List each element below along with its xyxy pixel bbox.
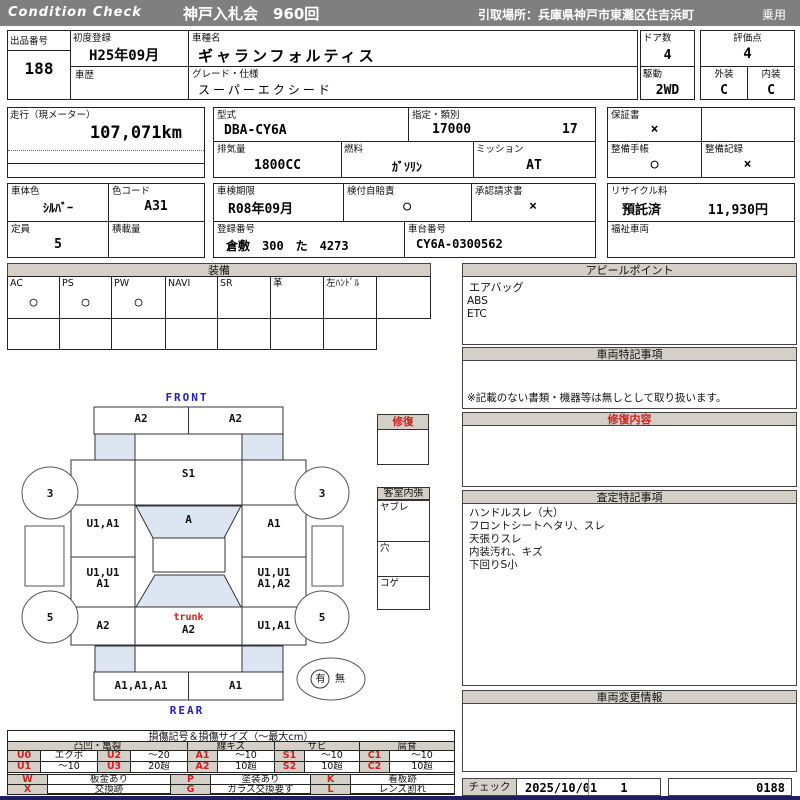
field-recycle-group: リサイクル料 預託済 11,930円 福祉車両 bbox=[607, 183, 795, 258]
model-code-value: DBA-CY6A bbox=[224, 123, 287, 138]
vehicle-category: 乗用 bbox=[762, 6, 786, 23]
field-model-name: 車種名 ギャランフォルティス グレード・仕様 スーパーエクシード bbox=[188, 30, 638, 100]
panel-rear-bumper-left: A1,A1,A1 bbox=[94, 680, 188, 691]
legend-value: ガラス交換要す bbox=[210, 784, 311, 795]
panel-front-bumper-left: A2 bbox=[94, 413, 188, 424]
equipment-label: PS bbox=[62, 278, 74, 289]
chassis-value: CY6A-0300562 bbox=[416, 237, 503, 251]
change-panel-title: 車両変更情報 bbox=[462, 690, 797, 704]
repair-panel-body bbox=[462, 426, 797, 487]
class-value-1: 17000 bbox=[432, 122, 471, 137]
equipment-cell-leather: 革 bbox=[270, 276, 324, 319]
equipment-empty-cell bbox=[59, 318, 112, 350]
equipment-empty-cell bbox=[111, 318, 166, 350]
equipment-mark: ○ bbox=[8, 295, 59, 310]
vehicle-notes-title: 車両特記事項 bbox=[462, 347, 797, 361]
field-model-code-group: 型式 DBA-CY6A 指定・類別 17000 17 排気量 1800CC 燃料… bbox=[213, 107, 596, 178]
mileage-label: 走行（現メーター） bbox=[10, 110, 96, 121]
check-number-box: 0188 bbox=[668, 778, 792, 796]
grade-value: スーパーエクシード bbox=[198, 81, 333, 98]
field-score: 評価点 4 外装 C 内装 C bbox=[700, 30, 795, 100]
cabin-row-burn: コゲ bbox=[377, 576, 430, 610]
inspection-value: R08年09月 bbox=[228, 198, 293, 217]
assessment-line: 天張りスレ bbox=[469, 533, 522, 546]
color-code-label: 色コード bbox=[112, 186, 150, 197]
equipment-empty-cell bbox=[7, 318, 60, 350]
welfare-label: 福祉車両 bbox=[611, 224, 649, 235]
trunk-caption: trunk bbox=[135, 612, 242, 623]
score-value: 4 bbox=[701, 46, 794, 62]
assessment-panel-body: ハンドルスレ（大） フロントシートヘタリ、スレ 天張りスレ 内装汚れ、キズ 下回… bbox=[462, 504, 797, 686]
cabin-row-tear: ヤブレ bbox=[377, 500, 430, 542]
mission-value: AT bbox=[473, 158, 595, 173]
warranty-label: 保証書 bbox=[611, 110, 640, 121]
maintenance-book-label: 整備手帳 bbox=[611, 144, 649, 155]
legend-code: S2 bbox=[274, 761, 305, 773]
brand-logo: Condition Check bbox=[8, 5, 142, 20]
maintenance-record-value: × bbox=[701, 157, 794, 172]
recycle-status: 預託済 bbox=[622, 199, 661, 218]
legend-code: A2 bbox=[187, 761, 218, 773]
panel-hood: S1 bbox=[135, 468, 242, 479]
field-warranty-group: 保証書 × 整備手帳 ○ 整備記録 × bbox=[607, 107, 795, 178]
equipment-title: 装備 bbox=[7, 263, 431, 277]
interior-label: 内装 bbox=[748, 69, 794, 80]
equipment-label: AC bbox=[10, 278, 23, 289]
rear-right-wheel-mark: 5 bbox=[294, 612, 350, 623]
equipment-mark: ○ bbox=[112, 295, 165, 310]
field-inspection-group: 車検期限 R08年09月 検付自賠責 ○ 承認請求書 × 登録番号 倉敷 300… bbox=[213, 183, 596, 258]
recycle-fee: 11,930円 bbox=[708, 199, 768, 218]
drive-label: 駆動 bbox=[643, 69, 662, 80]
legend-code: G bbox=[170, 784, 211, 795]
equipment-cell-extra bbox=[376, 276, 431, 319]
cabin-box-title: 客室内張 bbox=[377, 487, 430, 500]
repair-mini-title: 修復 bbox=[377, 414, 429, 430]
reg-no-value: 倉敷 300 た 4273 bbox=[226, 237, 349, 254]
warranty-value: × bbox=[608, 122, 701, 137]
equipment-cell-navi: NAVI bbox=[165, 276, 218, 319]
legend-code: X bbox=[7, 784, 48, 795]
capacity-label: 定員 bbox=[11, 224, 30, 235]
equipment-cell-sr: SR bbox=[217, 276, 271, 319]
check-count: 1 bbox=[588, 781, 660, 795]
doors-label: ドア数 bbox=[643, 33, 672, 44]
roof-shape bbox=[153, 538, 225, 572]
legend-code: U3 bbox=[97, 761, 131, 773]
score-label: 評価点 bbox=[701, 33, 794, 44]
equipment-label: SR bbox=[220, 278, 233, 289]
cabin-row-hole: 穴 bbox=[377, 541, 430, 577]
field-body-color-group: 車体色 ｼﾙﾊﾞｰ 色コード A31 定員 5 積載量 bbox=[7, 183, 205, 258]
rear-lamp-right bbox=[242, 646, 283, 672]
panel-windshield: A bbox=[135, 514, 242, 525]
change-panel-body bbox=[462, 704, 797, 772]
panel-quarter-left: A2 bbox=[71, 620, 135, 631]
front-lamp-right bbox=[242, 434, 283, 460]
vehicle-notes-body: ※記載のない書類・機器等は無しとして取り扱います。 bbox=[462, 361, 797, 409]
assessment-panel-title: 査定特記事項 bbox=[462, 490, 797, 504]
equipment-empty-cell bbox=[217, 318, 271, 350]
legend-value: レンズ割れ bbox=[350, 784, 455, 795]
drive-value: 2WD bbox=[641, 83, 694, 98]
interior-value: C bbox=[748, 83, 794, 98]
cabin-row-label: ヤブレ bbox=[380, 502, 409, 513]
maintenance-book-value: ○ bbox=[608, 157, 701, 172]
exhibit-no-value: 188 bbox=[8, 59, 70, 78]
fuel-label: 燃料 bbox=[344, 144, 363, 155]
field-doors-drive: ドア数 4 駆動 2WD bbox=[640, 30, 695, 100]
field-first-registration: 初度登録 H25年09月 車歴 bbox=[70, 30, 189, 100]
exhibit-no-label: 出品番号 bbox=[8, 31, 70, 51]
approval-value: × bbox=[471, 199, 595, 214]
body-color-label: 車体色 bbox=[11, 186, 40, 197]
legend-value: 10超 bbox=[304, 761, 360, 773]
panel-trunk: A2 bbox=[135, 624, 242, 635]
legend-value: ～10 bbox=[40, 761, 98, 773]
repair-mini-body bbox=[377, 430, 429, 465]
recycle-label: リサイクル料 bbox=[611, 186, 668, 197]
equipment-label: 左ﾊﾝﾄﾞﾙ bbox=[326, 278, 359, 289]
appeal-line: ABS bbox=[467, 295, 488, 308]
panel-front-bumper-right: A2 bbox=[188, 413, 283, 424]
appeal-line: ETC bbox=[467, 308, 487, 321]
presence-yes-label: 有 bbox=[314, 674, 327, 685]
equipment-empty-cell bbox=[323, 318, 377, 350]
equipment-label: 革 bbox=[273, 278, 283, 289]
color-code-value: A31 bbox=[108, 199, 204, 214]
legend-value: 10超 bbox=[217, 761, 275, 773]
check-label: チェック bbox=[462, 778, 517, 796]
equipment-empty-cell bbox=[270, 318, 324, 350]
pickup-location: 引取場所：兵庫県神戸市東灘区住吉浜町 bbox=[478, 6, 694, 23]
equipment-mark: ○ bbox=[60, 295, 111, 310]
equipment-cell-pw: PW ○ bbox=[111, 276, 166, 319]
field-exhibit-no: 出品番号 188 bbox=[7, 30, 71, 100]
front-left-wheel-mark: 3 bbox=[22, 488, 78, 499]
first-reg-value: H25年09月 bbox=[89, 45, 159, 65]
approval-label: 承認請求書 bbox=[475, 186, 523, 197]
left-rocker-panel bbox=[25, 526, 64, 586]
reg-no-label: 登録番号 bbox=[217, 224, 255, 235]
capacity-value: 5 bbox=[8, 237, 108, 252]
load-label: 積載量 bbox=[112, 224, 141, 235]
legend-code: L bbox=[310, 784, 351, 795]
panel-fender-left: U1,A1 bbox=[71, 518, 135, 529]
check-number: 0188 bbox=[756, 781, 785, 795]
vehicle-notes-disclaimer: ※記載のない書類・機器等は無しとして取り扱います。 bbox=[467, 392, 726, 405]
body-color-value: ｼﾙﾊﾞｰ bbox=[8, 199, 108, 216]
assessment-line: 下回りS小 bbox=[469, 559, 518, 572]
legend-value: 10超 bbox=[389, 761, 455, 773]
repair-panel-title: 修復内容 bbox=[462, 412, 797, 426]
diagram-front-label: FRONT bbox=[130, 392, 244, 403]
chassis-label: 車台番号 bbox=[408, 224, 446, 235]
equipment-cell-ps: PS ○ bbox=[59, 276, 112, 319]
presence-ellipse bbox=[297, 658, 365, 700]
right-rocker-panel bbox=[312, 526, 343, 586]
history-label: 車歴 bbox=[75, 70, 94, 81]
assessment-line: ハンドルスレ（大） bbox=[469, 507, 564, 520]
legend-value: 交換跡 bbox=[47, 784, 171, 795]
exterior-label: 外装 bbox=[701, 69, 747, 80]
fuel-value: ｶﾞｿﾘﾝ bbox=[341, 158, 473, 175]
panel-rear-bumper-right: A1 bbox=[188, 680, 283, 691]
auction-title: 神戸入札会 960回 bbox=[183, 3, 319, 24]
panel-door-left: U1,U1 A1 bbox=[71, 567, 135, 589]
appeal-panel-title: アピールポイント bbox=[462, 263, 797, 277]
assessment-line: フロントシートヘタリ、スレ bbox=[469, 520, 605, 533]
exterior-value: C bbox=[701, 83, 747, 98]
diagram-rear-label: REAR bbox=[130, 705, 244, 716]
appeal-line: エアバッグ bbox=[469, 281, 524, 294]
rear-lamp-left bbox=[95, 646, 135, 672]
equipment-label: PW bbox=[114, 278, 129, 289]
displacement-value: 1800CC bbox=[214, 158, 341, 173]
grade-label: グレード・仕様 bbox=[192, 69, 259, 80]
first-reg-label: 初度登録 bbox=[73, 33, 111, 44]
displacement-label: 排気量 bbox=[217, 144, 246, 155]
doors-value: 4 bbox=[641, 48, 694, 63]
cabin-row-label: 穴 bbox=[380, 543, 390, 554]
model-code-label: 型式 bbox=[217, 110, 236, 121]
presence-no-label: 無 bbox=[333, 674, 347, 685]
cabin-row-label: コゲ bbox=[380, 578, 399, 589]
front-right-wheel-mark: 3 bbox=[294, 488, 350, 499]
model-name-label: 車種名 bbox=[192, 33, 221, 44]
inspection-label: 車検期限 bbox=[217, 186, 255, 197]
title-bar: Condition Check 神戸入札会 960回 引取場所：兵庫県神戸市東灘… bbox=[0, 0, 800, 26]
class-value-2: 17 bbox=[562, 122, 578, 137]
appeal-panel-body: エアバッグ ABS ETC bbox=[462, 277, 797, 345]
legend-code: C2 bbox=[359, 761, 390, 773]
maintenance-record-label: 整備記録 bbox=[705, 144, 743, 155]
check-date-box: 2025/10/01 1 bbox=[516, 778, 661, 796]
assessment-line: 内装汚れ、キズ bbox=[469, 546, 543, 559]
front-lamp-left bbox=[95, 434, 135, 460]
field-mileage: 走行（現メーター） 107,071km bbox=[7, 107, 205, 178]
equipment-label: NAVI bbox=[168, 278, 190, 289]
equipment-empty-cell bbox=[165, 318, 218, 350]
mission-label: ミッション bbox=[476, 144, 524, 155]
footer-rule bbox=[0, 796, 800, 800]
mileage-value: 107,071km bbox=[90, 123, 182, 143]
insurance-value: ○ bbox=[343, 199, 471, 214]
legend-code: U1 bbox=[7, 761, 41, 773]
model-name-value: ギャランフォルティス bbox=[198, 45, 377, 66]
legend-value: 20超 bbox=[130, 761, 188, 773]
equipment-cell-left-handle: 左ﾊﾝﾄﾞﾙ bbox=[323, 276, 377, 319]
rear-window-shape bbox=[136, 575, 241, 607]
class-label: 指定・類別 bbox=[412, 110, 460, 121]
rear-left-wheel-mark: 5 bbox=[22, 612, 78, 623]
equipment-cell-ac: AC ○ bbox=[7, 276, 60, 319]
insurance-label: 検付自賠責 bbox=[347, 186, 395, 197]
check-date: 2025/10/01 bbox=[525, 781, 597, 795]
panel-door-right: U1,U1 A1,A2 bbox=[242, 567, 306, 589]
panel-fender-right: A1 bbox=[242, 518, 306, 529]
